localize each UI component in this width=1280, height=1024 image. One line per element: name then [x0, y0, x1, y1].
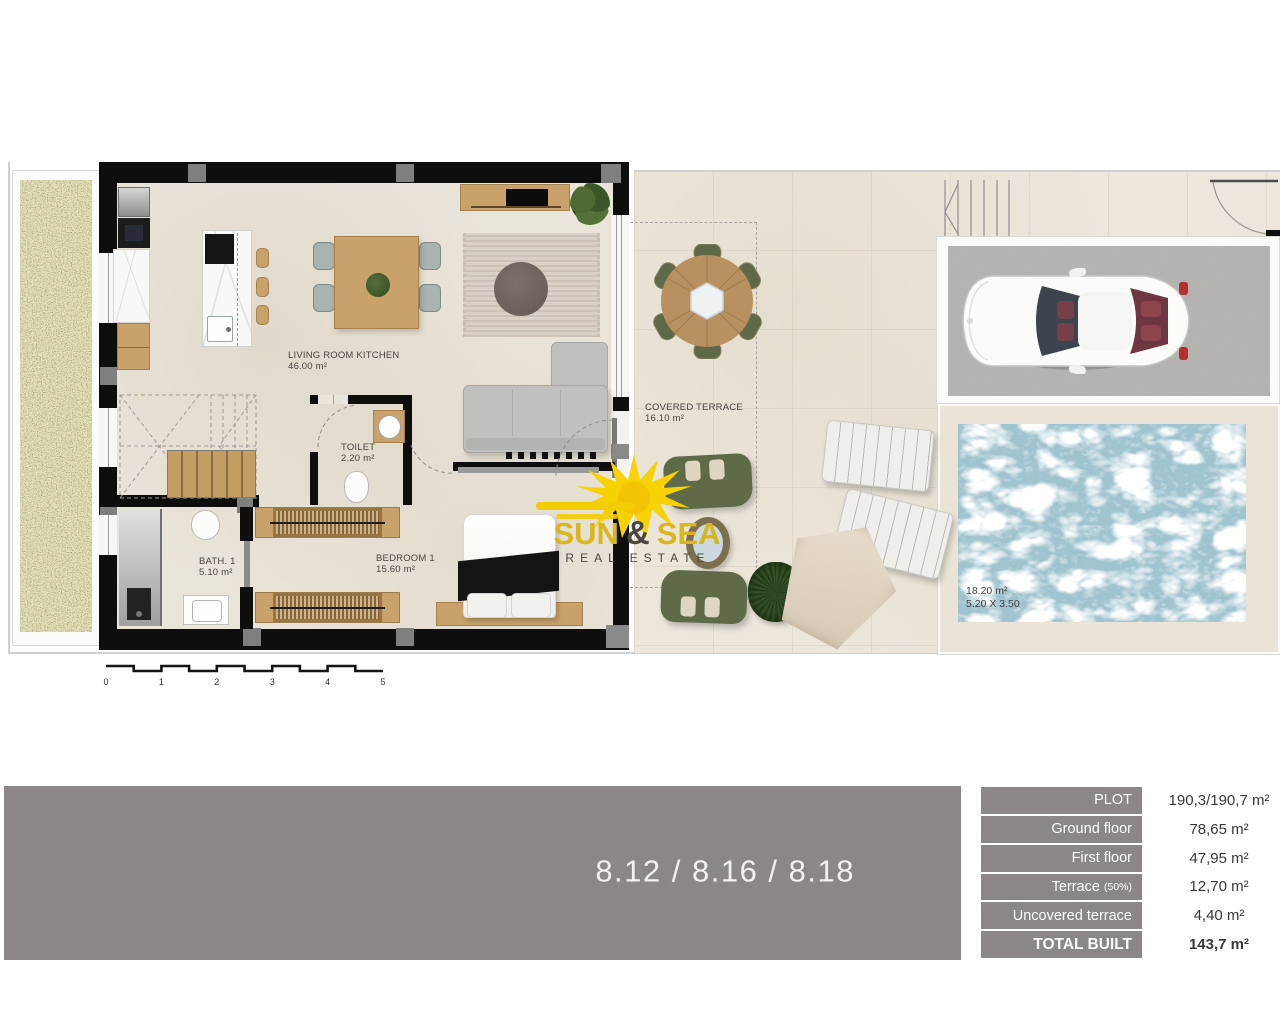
area-row-label-total: TOTAL BUILT [981, 931, 1142, 958]
covered-terrace-label: COVERED TERRACE 16.10 m² [645, 402, 743, 424]
area-row-label: First floor [981, 845, 1142, 872]
floor-plan: 18.20 m² 5.20 X 3.50 COVERED TERRACE 16.… [0, 0, 1280, 700]
area-row-value-total: 143,7 m² [1145, 931, 1280, 958]
shower [119, 509, 162, 626]
area-row-value: 78,65 m² [1145, 816, 1280, 843]
area-row-label: Ground floor [981, 816, 1142, 843]
stairs-treads [167, 450, 256, 498]
bedroom-label: BEDROOM 1 15.60 m² [376, 553, 435, 575]
scale-tick-3: 3 [270, 677, 275, 687]
area-row-value: 47,95 m² [1145, 845, 1280, 872]
toilet-wc [344, 471, 369, 503]
pool-area: 18.20 m² [966, 585, 1007, 597]
pool-dimensions: 5.20 X 3.50 [966, 598, 1020, 610]
wardrobe [255, 592, 400, 623]
shower-drain [136, 611, 142, 617]
unit-number-band: 8.12 / 8.16 / 8.18 [4, 786, 961, 960]
area-table: PLOT 190,3/190,7 m² Ground floor 78,65 m… [981, 787, 1280, 958]
area-row-label: Terrace(50%) [981, 874, 1142, 901]
scale-tick-0: 0 [103, 677, 108, 687]
logo-word-sun: SUN [553, 516, 618, 552]
living-room-label: LIVING ROOM KITCHEN 46.00 m² [288, 350, 399, 372]
unit-numbers: 8.12 / 8.16 / 8.18 [595, 854, 855, 890]
wardrobe [255, 507, 400, 538]
pool-label: 18.20 m² 5.20 X 3.50 [966, 585, 1020, 611]
car-icon [958, 268, 1194, 374]
garden-frame [12, 170, 100, 646]
exterior-stairs [944, 178, 1010, 240]
outdoor-dining-set [650, 244, 765, 359]
scale-tick-2: 2 [214, 677, 219, 687]
area-row-value: 4,40 m² [1145, 902, 1280, 929]
area-row-value: 190,3/190,7 m² [1145, 787, 1280, 814]
area-row-label: Uncovered terrace [981, 902, 1142, 929]
scale-tick-5: 5 [380, 677, 385, 687]
bath-label: BATH. 1 5.10 m² [199, 556, 236, 578]
bath-wc [191, 510, 220, 540]
toilet-vanity [373, 410, 405, 443]
scale-bar: 0 1 2 3 4 5 [98, 656, 390, 690]
bath-sink-bowl [192, 600, 222, 622]
bed-pillow [511, 593, 551, 618]
bed-pillow [467, 593, 507, 618]
outdoor-sofa-2 [660, 570, 748, 625]
logo-ampersand: & [626, 514, 650, 552]
sun-lounger-1 [821, 420, 935, 493]
toilet-label: TOILET 2.20 m² [341, 442, 375, 464]
logo-wordmark: SUN & SEA [552, 514, 722, 552]
scale-tick-4: 4 [325, 677, 330, 687]
logo-word-sea: SEA [657, 516, 721, 552]
scale-tick-1: 1 [159, 677, 164, 687]
toilet-basin [378, 415, 401, 439]
garden-grass [20, 180, 92, 632]
area-row-value: 12,70 m² [1145, 874, 1280, 901]
plot-boundary-left [8, 162, 10, 654]
logo-subtitle: REAL ESTATE [558, 551, 718, 565]
shower-column [127, 588, 151, 620]
bath-sink [183, 595, 229, 625]
area-row-label: PLOT [981, 787, 1142, 814]
